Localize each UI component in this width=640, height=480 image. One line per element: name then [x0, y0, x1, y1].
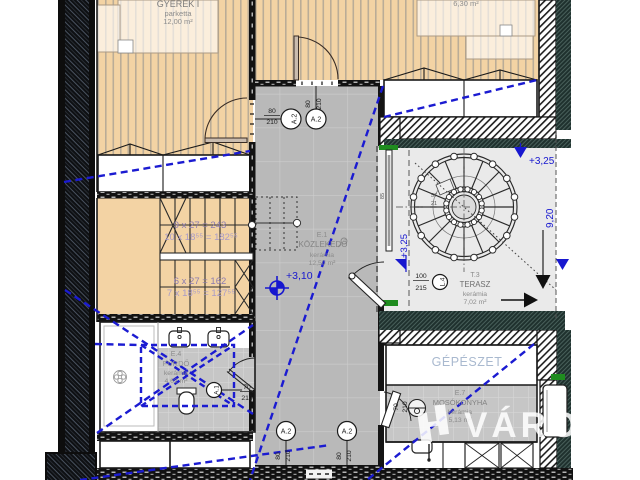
svg-text:kerámia: kerámia — [164, 370, 188, 377]
svg-text:80: 80 — [268, 108, 276, 115]
svg-text:85: 85 — [380, 193, 386, 199]
svg-text:210: 210 — [402, 401, 409, 413]
svg-text:FÜRDŐ: FÜRDŐ — [163, 359, 190, 368]
svg-text:7 x 18⁵⁵ = 127⁵⁵: 7 x 18⁵⁵ = 127⁵⁵ — [167, 288, 235, 299]
svg-text:210: 210 — [285, 450, 292, 462]
svg-text:4,62 m²: 4,62 m² — [164, 378, 188, 385]
svg-text:E.7: E.7 — [455, 390, 466, 397]
svg-text:215: 215 — [415, 285, 427, 292]
svg-text:T.3: T.3 — [470, 272, 479, 279]
svg-text:100: 100 — [415, 273, 427, 280]
svg-text:12,50 m²: 12,50 m² — [309, 260, 337, 267]
svg-text:10 x 18⁵⁵ = 182⁵⁵: 10 x 18⁵⁵ = 182⁵⁵ — [164, 232, 238, 243]
svg-text:57: 57 — [431, 193, 437, 199]
svg-text:kerámia: kerámia — [463, 291, 487, 298]
svg-text:12,00 m²: 12,00 m² — [163, 17, 193, 26]
svg-text:A.2: A.2 — [281, 429, 292, 436]
svg-text:9 x 27 = 243: 9 x 27 = 243 — [174, 220, 227, 231]
svg-text:A.1: A.1 — [214, 385, 221, 395]
svg-text:9,20: 9,20 — [545, 208, 556, 228]
svg-text:TERASZ: TERASZ — [460, 280, 491, 289]
svg-text:70: 70 — [243, 384, 251, 391]
svg-text:kerámia: kerámia — [310, 252, 334, 259]
svg-text:GÉPÉSZET: GÉPÉSZET — [432, 354, 503, 369]
svg-text:A.2: A.2 — [291, 114, 298, 125]
svg-text:7,02 m²: 7,02 m² — [463, 299, 487, 306]
svg-text:210: 210 — [266, 119, 278, 126]
svg-text:21: 21 — [431, 201, 437, 207]
svg-text:6 x 27 = 162: 6 x 27 = 162 — [174, 276, 227, 287]
svg-text:+3,25: +3,25 — [399, 234, 410, 258]
svg-text:KÖZLEKEDŐ: KÖZLEKEDŐ — [299, 240, 348, 249]
svg-text:210: 210 — [241, 395, 253, 402]
svg-text:70: 70 — [393, 403, 400, 411]
svg-text:210: 210 — [316, 98, 323, 110]
svg-text:A.2: A.2 — [342, 429, 353, 436]
svg-text:A.2: A.2 — [311, 117, 322, 124]
svg-text:80: 80 — [336, 452, 343, 460]
svg-text:80: 80 — [305, 100, 312, 108]
svg-text:6,30 m²: 6,30 m² — [453, 0, 479, 8]
svg-text:E.4: E.4 — [171, 351, 182, 358]
svg-text:E.1: E.1 — [317, 232, 328, 239]
svg-text:+3,25: +3,25 — [529, 156, 555, 167]
svg-text:L.4: L.4 — [440, 277, 447, 286]
svg-text:+3,10: +3,10 — [286, 270, 313, 282]
svg-text:210: 210 — [346, 450, 353, 462]
svg-text:GYEREK I: GYEREK I — [157, 0, 200, 9]
svg-text:VÁRO: VÁRO — [464, 405, 581, 445]
